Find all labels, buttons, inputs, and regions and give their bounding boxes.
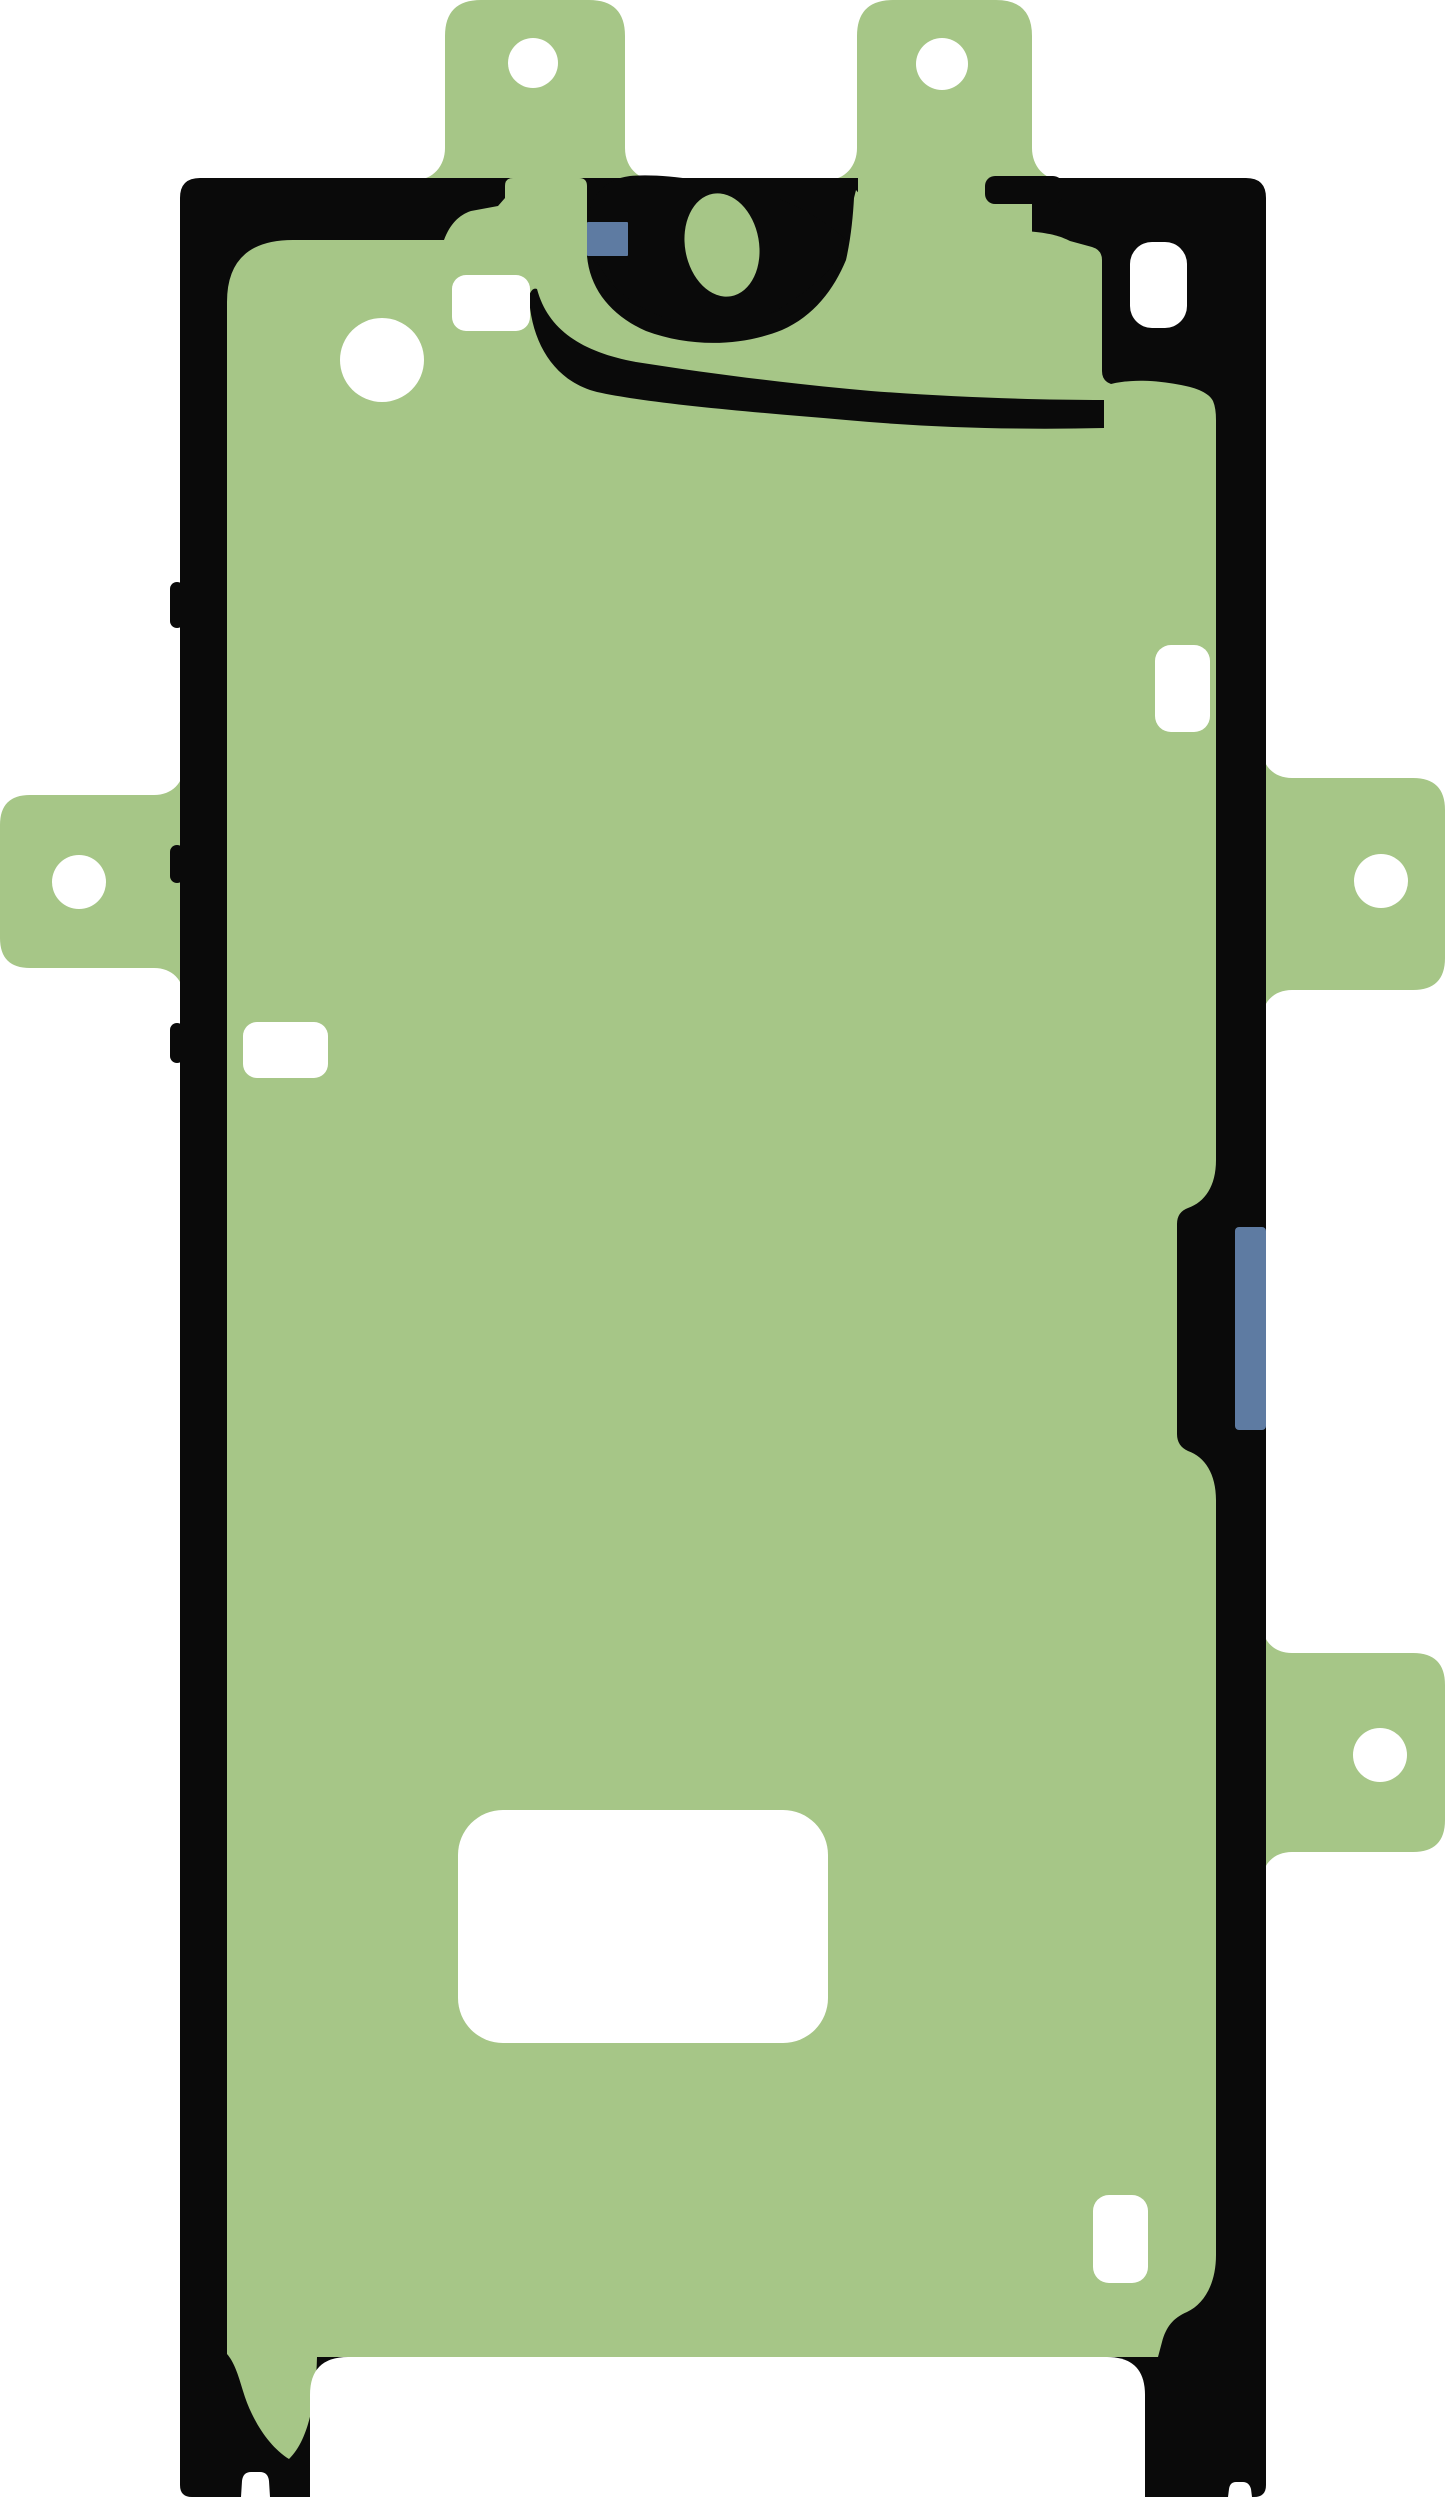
cutout-bottom-right-rect [1093, 2195, 1148, 2283]
hole-tab-right-lower [1353, 1728, 1407, 1782]
cutout-top-left-rect [452, 275, 530, 331]
cutout-earpiece-circle [340, 318, 424, 402]
product-image [0, 0, 1445, 2497]
blue-marker-top [587, 222, 628, 256]
hole-tab-top-right [916, 38, 968, 90]
adhesive-body [227, 178, 1216, 2459]
tab-top-right [827, 0, 1062, 180]
tab-right-upper [1262, 748, 1445, 1020]
cutout-top-right-rect [1130, 242, 1187, 328]
adhesive-sticker-graphic [0, 0, 1445, 2497]
hole-tab-right-upper [1354, 854, 1408, 908]
side-bump-middle [170, 845, 184, 883]
cutout-left-mid-rect [243, 1022, 328, 1078]
hole-tab-top-left [508, 38, 558, 88]
side-bump-lower [170, 1023, 184, 1063]
side-bump-upper [170, 582, 184, 628]
tab-top-left [415, 0, 655, 180]
blue-marker-right [1235, 1227, 1266, 1430]
cutout-bottom-opening [310, 2357, 1145, 2497]
cutout-right-mid-rect [1155, 645, 1210, 732]
cutout-bottom-large-rect [458, 1810, 828, 2043]
hole-tab-left [52, 855, 106, 909]
outline-nose [985, 176, 1063, 204]
